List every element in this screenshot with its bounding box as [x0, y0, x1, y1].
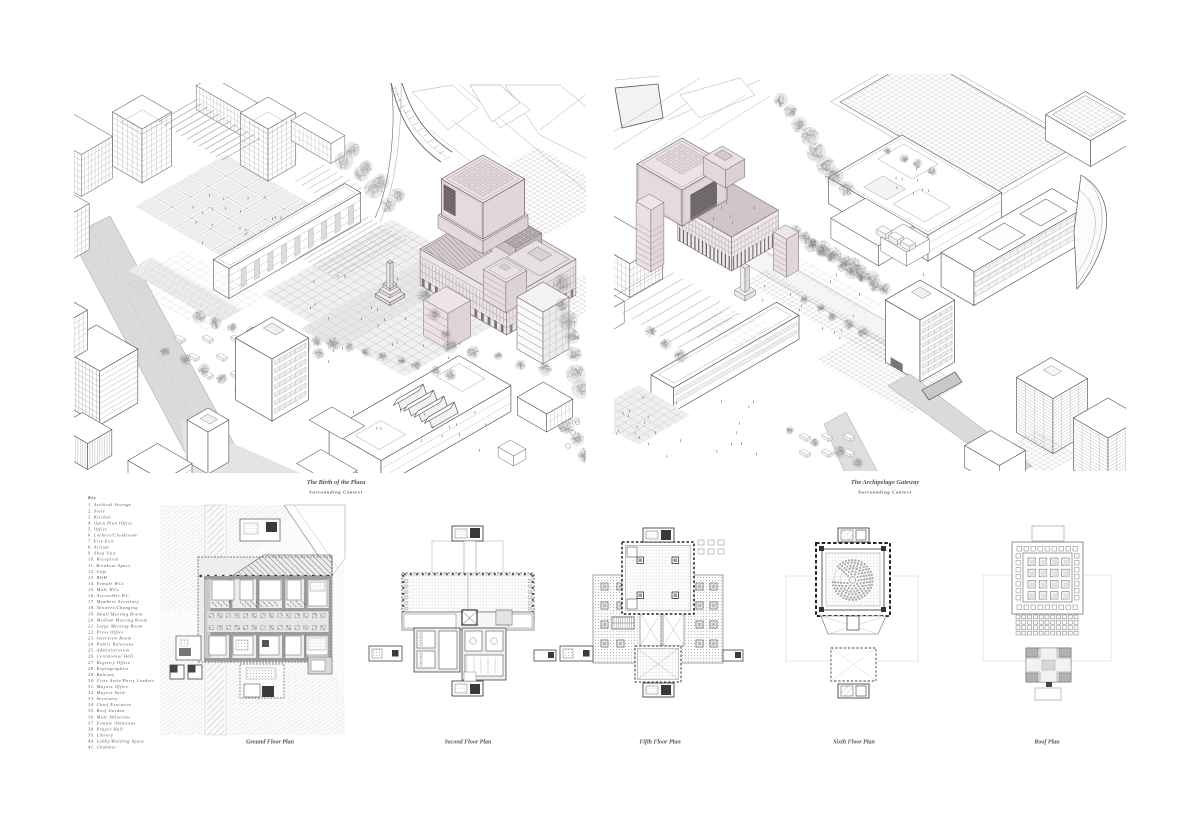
svg-text:The Birth of the Plaza: The Birth of the Plaza — [307, 479, 366, 486]
svg-text:4. Open Plan Office: 4. Open Plan Office — [88, 520, 133, 525]
svg-text:10. Reception: 10. Reception — [88, 557, 119, 562]
svg-text:19. Small Meeting Room: 19. Small Meeting Room — [88, 611, 142, 616]
svg-text:Key: Key — [87, 495, 96, 500]
svg-text:13. BOH: 13. BOH — [88, 575, 107, 580]
svg-text:Surrounding Context: Surrounding Context — [309, 490, 363, 495]
svg-text:15. Male WCs: 15. Male WCs — [88, 587, 119, 592]
svg-text:14. Female WCs: 14. Female WCs — [88, 581, 124, 586]
svg-text:34. Chief Executive: 34. Chief Executive — [88, 702, 132, 707]
svg-text:29. Balcony: 29. Balcony — [88, 672, 114, 677]
svg-text:Surrounding Context: Surrounding Context — [858, 490, 912, 495]
svg-text:Ground Floor Plan: Ground Floor Plan — [246, 740, 295, 746]
svg-text:5. Office: 5. Office — [88, 526, 108, 531]
svg-text:39. Library: 39. Library — [88, 732, 114, 737]
svg-text:25. Administration: 25. Administration — [88, 648, 130, 653]
svg-text:Fifth Floor Plan: Fifth Floor Plan — [639, 740, 681, 746]
svg-text:27. Registry Office: 27. Registry Office — [88, 660, 131, 665]
svg-text:40. Lobby/Reading Space: 40. Lobby/Reading Space — [88, 739, 145, 744]
svg-text:Second Floor Plan: Second Floor Plan — [445, 740, 492, 746]
svg-text:12. Cafe: 12. Cafe — [88, 569, 107, 574]
svg-text:30. Civic Suite/Party Leaders: 30. Civic Suite/Party Leaders — [88, 678, 154, 683]
svg-text:2. Store: 2. Store — [88, 508, 106, 513]
svg-text:31. Mayors Office: 31. Mayors Office — [88, 684, 128, 689]
svg-text:1. Archival Storage: 1. Archival Storage — [88, 502, 132, 507]
svg-text:36. Male Ablutions: 36. Male Ablutions — [88, 714, 130, 719]
svg-text:9. Shop Unit: 9. Shop Unit — [88, 551, 116, 556]
svg-text:35. Roof Garden: 35. Roof Garden — [88, 708, 125, 713]
svg-text:38. Prayer Hall: 38. Prayer Hall — [88, 726, 123, 731]
svg-text:16. Accessible WC: 16. Accessible WC — [88, 593, 129, 598]
svg-text:17. Members Secretary: 17. Members Secretary — [88, 599, 139, 604]
svg-text:7. Fire Exit: 7. Fire Exit — [88, 539, 114, 544]
svg-text:Sixth Floor Plan: Sixth Floor Plan — [833, 740, 875, 746]
svg-text:28. Reprographics: 28. Reprographics — [88, 666, 129, 671]
svg-text:20. Medium Meeting Room: 20. Medium Meeting Room — [88, 617, 147, 622]
svg-text:32. Mayors Suite: 32. Mayors Suite — [88, 690, 126, 695]
svg-text:11. Breakout Space: 11. Breakout Space — [88, 563, 131, 568]
svg-text:6. Lockers/Cloakroom: 6. Lockers/Cloakroom — [88, 533, 137, 538]
svg-text:22. Press Office: 22. Press Office — [88, 629, 124, 634]
svg-text:33. Secretary: 33. Secretary — [88, 696, 118, 701]
svg-text:8. Atrium: 8. Atrium — [88, 545, 109, 550]
svg-text:37. Female Ablutions: 37. Female Ablutions — [88, 720, 136, 725]
svg-text:23. Interview Room: 23. Interview Room — [88, 636, 132, 641]
svg-text:26. Ceremonial Hall: 26. Ceremonial Hall — [88, 654, 134, 659]
svg-text:21. Large Meeting Room: 21. Large Meeting Room — [88, 623, 143, 628]
svg-text:Roof Plan: Roof Plan — [1033, 740, 1060, 746]
svg-text:24. Public Relations: 24. Public Relations — [88, 642, 134, 647]
svg-text:3. Kitchen: 3. Kitchen — [88, 514, 111, 519]
svg-text:41. Chamber: 41. Chamber — [88, 745, 116, 750]
svg-text:The Archipelago Gateway: The Archipelago Gateway — [851, 479, 919, 486]
svg-text:18. Showers/Changing: 18. Showers/Changing — [88, 605, 138, 610]
